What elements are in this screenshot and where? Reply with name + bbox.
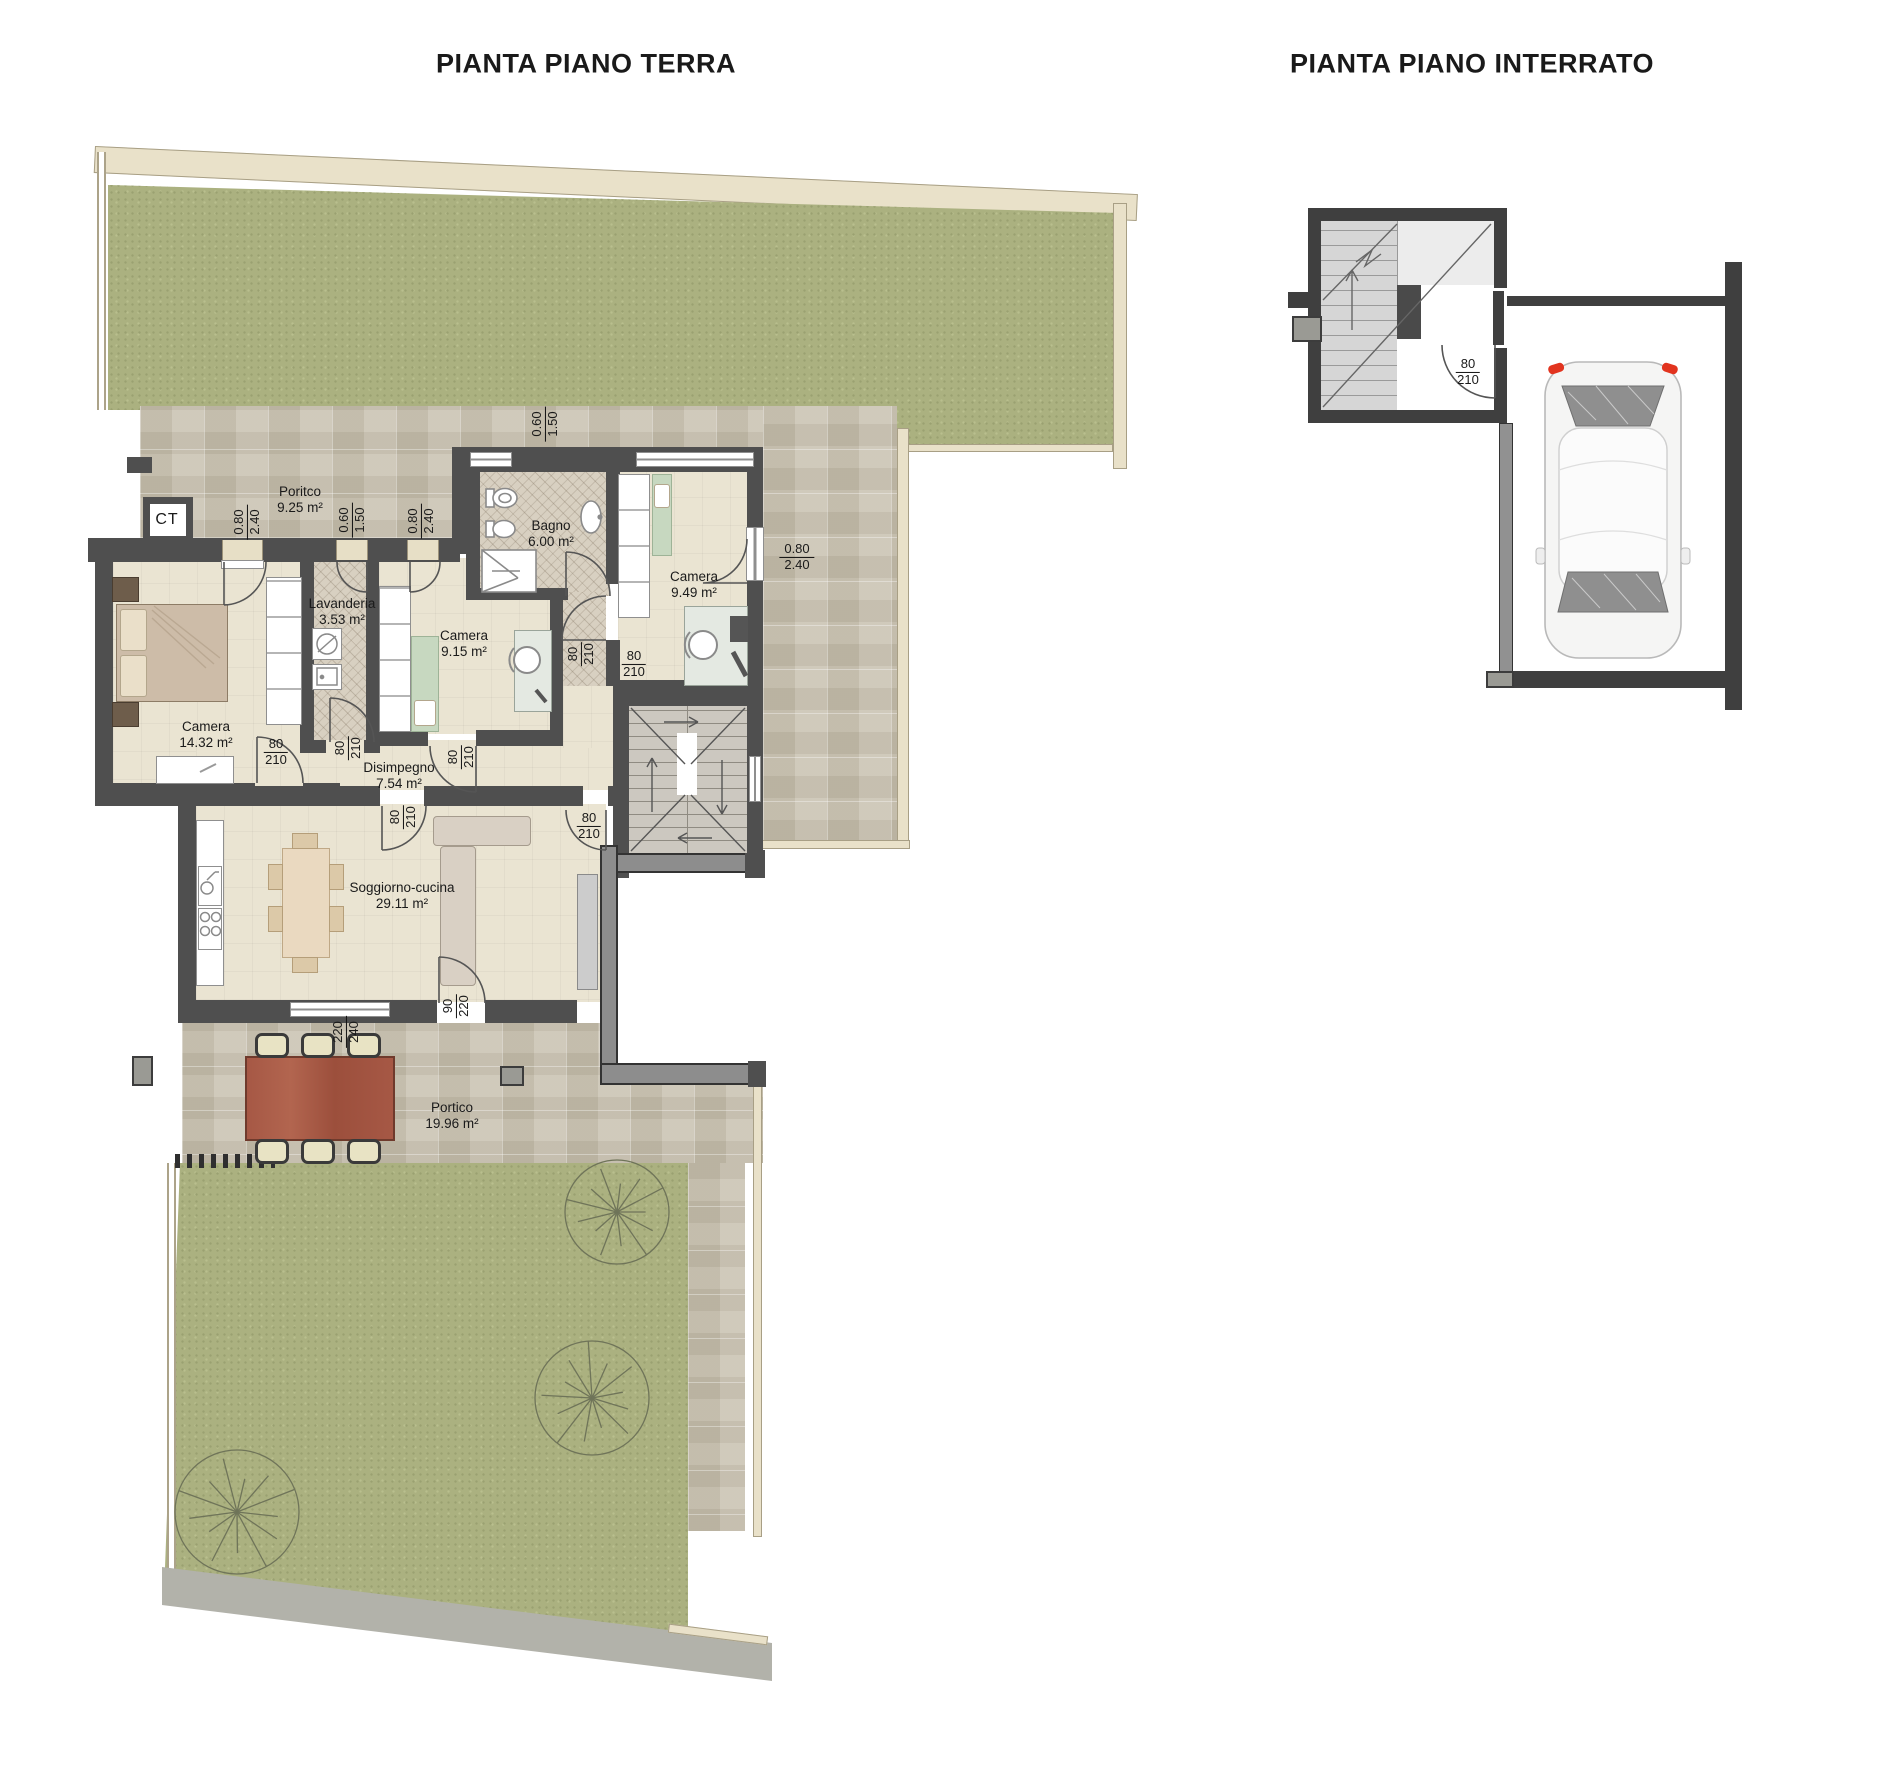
- room-label-bagno: Bagno6.00 m²: [528, 518, 574, 550]
- room-name: Poritco: [277, 484, 323, 500]
- basement-stairs-landing: [1397, 285, 1421, 339]
- stairs-ground-gap: [677, 733, 697, 795]
- room-label-camera: Camera14.32 m²: [179, 719, 232, 751]
- car-tail-light: [1547, 362, 1565, 376]
- dimension-label: 80210: [622, 649, 646, 679]
- dimension-width: 0.80: [232, 504, 248, 539]
- paving-right-strip: [688, 1163, 745, 1531]
- sofa-chaise: [433, 816, 531, 846]
- ramp-pillar: [500, 1066, 524, 1086]
- garden-bottom-left-edge: [167, 1163, 176, 1570]
- wall-stub-left: [127, 457, 152, 473]
- car-icon: [1536, 362, 1690, 658]
- car-mirror: [1536, 548, 1545, 564]
- car-windshield: [1558, 572, 1668, 612]
- garage-wall-south: [1513, 671, 1727, 688]
- dimension-height: 2.40: [422, 508, 437, 533]
- wall-bagno-west: [466, 460, 480, 594]
- dimension-width: 90: [441, 994, 457, 1018]
- tv-sideboard: [577, 874, 598, 990]
- room-area: 3.53 m²: [309, 612, 376, 628]
- room-area: 29.11 m²: [349, 896, 454, 912]
- room-name: Camera: [440, 628, 488, 644]
- room-area: 9.49 m²: [670, 585, 718, 601]
- dimension-label: 80210: [446, 745, 476, 769]
- wall-retaining-cap: [748, 1061, 766, 1087]
- dimension-height: 210: [582, 643, 597, 665]
- dimension-width: 80: [388, 805, 404, 829]
- bed-pillow: [120, 609, 147, 651]
- dimension-height: 210: [462, 746, 477, 768]
- floor-corridor: [563, 592, 606, 688]
- dimension-height: 1.50: [546, 411, 561, 436]
- floor-corridor-south: [563, 686, 613, 748]
- laundry-sink: [312, 664, 342, 690]
- wall-camera915-south-a: [372, 730, 428, 746]
- dimension-height: 210: [1457, 373, 1479, 388]
- dimension-height: 210: [265, 753, 287, 768]
- dimension-label: 80210: [333, 736, 363, 760]
- kitchen-stove: [198, 908, 222, 950]
- room-area: 7.54 m²: [363, 776, 434, 792]
- outdoor-chair: [347, 1139, 381, 1164]
- basement-title: PIANTA PIANO INTERRATO: [1290, 49, 1654, 80]
- dimension-width: 80: [566, 642, 582, 666]
- wall-camera915-south-b: [476, 730, 563, 746]
- dimension-label: 80210: [264, 737, 288, 767]
- dimension-label: 0.802.40: [406, 503, 436, 538]
- wall-soggiorno-west: [178, 786, 196, 1023]
- garage-stub-gray: [1486, 671, 1514, 688]
- desk-monitor: [730, 616, 748, 642]
- wall-retaining-south: [600, 1063, 765, 1085]
- dimension-height: 2.40: [248, 509, 263, 534]
- dimension-height: 210: [623, 665, 645, 680]
- window-sill-entry: [221, 560, 264, 569]
- dimension-label: 220240: [331, 1016, 361, 1048]
- wall-int-lavanderia-camera915: [366, 556, 379, 746]
- outdoor-chair: [255, 1033, 289, 1058]
- room-area: 9.25 m²: [277, 500, 323, 516]
- window-opening-060: [336, 540, 368, 560]
- kitchen-sink-unit: [198, 866, 222, 906]
- bed-pillow: [654, 484, 670, 508]
- dimension-label: 0.802.40: [779, 542, 814, 572]
- wall-soggiorno-north-a: [196, 786, 380, 806]
- desk-camera14: [156, 756, 234, 784]
- room-area: 6.00 m²: [528, 534, 574, 550]
- car-rear-window: [1562, 386, 1664, 426]
- room-name: Bagno: [528, 518, 574, 534]
- paving-right-of-house: [763, 406, 897, 842]
- nightstand: [112, 702, 139, 727]
- paving-bottom-edge: [755, 840, 910, 849]
- dining-chair: [268, 906, 283, 932]
- dimension-width: 80: [446, 745, 462, 769]
- desk-camera915: [514, 630, 552, 712]
- dimension-label: 0.802.40: [232, 504, 262, 539]
- basement-stub-gray: [1292, 316, 1322, 342]
- room-label-portico: Portico19.96 m²: [425, 1100, 478, 1132]
- car-tail-light: [1661, 362, 1679, 376]
- dimension-height: 2.40: [784, 558, 809, 573]
- dimension-width: 80: [1456, 357, 1480, 373]
- room-label-camera: Camera9.49 m²: [670, 569, 718, 601]
- dimension-width: 0.60: [530, 406, 546, 441]
- nightstand: [112, 577, 139, 602]
- wall-soggiorno-south-b: [485, 1000, 577, 1023]
- room-label-soggiorno-cucina: Soggiorno-cucina29.11 m²: [349, 880, 454, 912]
- dimension-width: 0.80: [406, 503, 422, 538]
- window-bagno-north: [470, 452, 512, 467]
- door-opening-camera915: [407, 540, 439, 560]
- dimension-width: 0.80: [779, 542, 814, 558]
- room-label-disimpegno: Disimpegno7.54 m²: [363, 760, 434, 792]
- window-stairwell-east: [749, 756, 761, 802]
- garden-top-right-edge: [1113, 203, 1127, 469]
- dimension-width: 220: [331, 1016, 347, 1048]
- dimension-label: 80210: [566, 642, 596, 666]
- window-camera949-north: [636, 452, 754, 467]
- garden-left-fence: [97, 152, 106, 410]
- dimension-width: 80: [333, 736, 349, 760]
- wall-stair-south: [600, 853, 757, 873]
- dining-table: [282, 848, 330, 958]
- dimension-label: 90220: [441, 994, 471, 1018]
- room-area: 19.96 m²: [425, 1116, 478, 1132]
- dimension-label: 80210: [388, 805, 418, 829]
- room-name: Camera: [179, 719, 232, 735]
- wardrobe: [618, 474, 650, 618]
- dimension-height: 210: [349, 737, 364, 759]
- dimension-width: 80: [577, 811, 601, 827]
- dimension-width: 80: [264, 737, 288, 753]
- ct-label: CT: [155, 511, 178, 529]
- dimension-label: 0.601.50: [530, 406, 560, 441]
- dimension-height: 1.50: [353, 507, 368, 532]
- room-name: Camera: [670, 569, 718, 585]
- bed-pillow: [120, 655, 147, 697]
- floor-plan-canvas: PIANTA PIANO TERRA PIANTA PIANO INTERRAT…: [0, 0, 1902, 1767]
- dining-chair: [292, 957, 318, 973]
- outdoor-chair: [255, 1139, 289, 1164]
- dining-chair: [329, 864, 344, 890]
- room-label-poritco: Poritco9.25 m²: [277, 484, 323, 516]
- wall-left: [95, 538, 113, 806]
- dining-chair: [268, 864, 283, 890]
- dimension-width: 0.60: [337, 502, 353, 537]
- ground-floor-title: PIANTA PIANO TERRA: [436, 49, 736, 80]
- outdoor-chair: [301, 1139, 335, 1164]
- basement-door-leaf: [1493, 291, 1504, 345]
- room-name: Portico: [425, 1100, 478, 1116]
- garage-wall-north: [1507, 296, 1727, 306]
- wardrobe: [266, 577, 302, 725]
- dimension-label: 0.601.50: [337, 502, 367, 537]
- room-label-lavanderia: Lavanderia3.53 m²: [309, 596, 376, 628]
- wall-lavanderia-south-a: [300, 740, 326, 753]
- room-area: 9.15 m²: [440, 644, 488, 660]
- room-area: 14.32 m²: [179, 735, 232, 751]
- dimension-height: 210: [578, 827, 600, 842]
- dimension-height: 220: [457, 995, 472, 1017]
- car-mirror: [1681, 548, 1690, 564]
- outdoor-table: [245, 1056, 395, 1141]
- basement-stairs-upper: [1397, 221, 1494, 285]
- dimension-width: 80: [622, 649, 646, 665]
- room-label-camera: Camera9.15 m²: [440, 628, 488, 660]
- room-name: Disimpegno: [363, 760, 434, 776]
- dining-chair: [292, 833, 318, 849]
- bed-pillow: [414, 700, 436, 726]
- door-opening-entry: [222, 540, 263, 560]
- basement-stub-dark: [1288, 292, 1310, 308]
- washing-machine: [312, 628, 342, 660]
- room-name: Soggiorno-cucina: [349, 880, 454, 896]
- wall-east-of-soggiorno: [600, 845, 618, 1073]
- garage-wall-west: [1499, 423, 1513, 673]
- dimension-height: 240: [347, 1021, 362, 1043]
- right-strip-outer-edge: [753, 1085, 762, 1537]
- dimension-label: 80210: [577, 811, 601, 841]
- wardrobe: [379, 586, 411, 732]
- dining-chair: [329, 906, 344, 932]
- garage-wall-east: [1725, 262, 1742, 710]
- paving-right-edge: [897, 428, 909, 848]
- window-soggiorno-south: [290, 1002, 390, 1017]
- sofa-body: [440, 846, 476, 986]
- window-camera949-east: [746, 527, 764, 581]
- basement-stairs-shading: [1321, 221, 1397, 410]
- dimension-label: 80210: [1456, 357, 1480, 387]
- dimension-height: 210: [404, 806, 419, 828]
- wall-soggiorno-north-b: [424, 786, 583, 806]
- room-name: Lavanderia: [309, 596, 376, 612]
- wall-stair-south-cap: [745, 850, 765, 878]
- portico-pillar: [132, 1056, 153, 1086]
